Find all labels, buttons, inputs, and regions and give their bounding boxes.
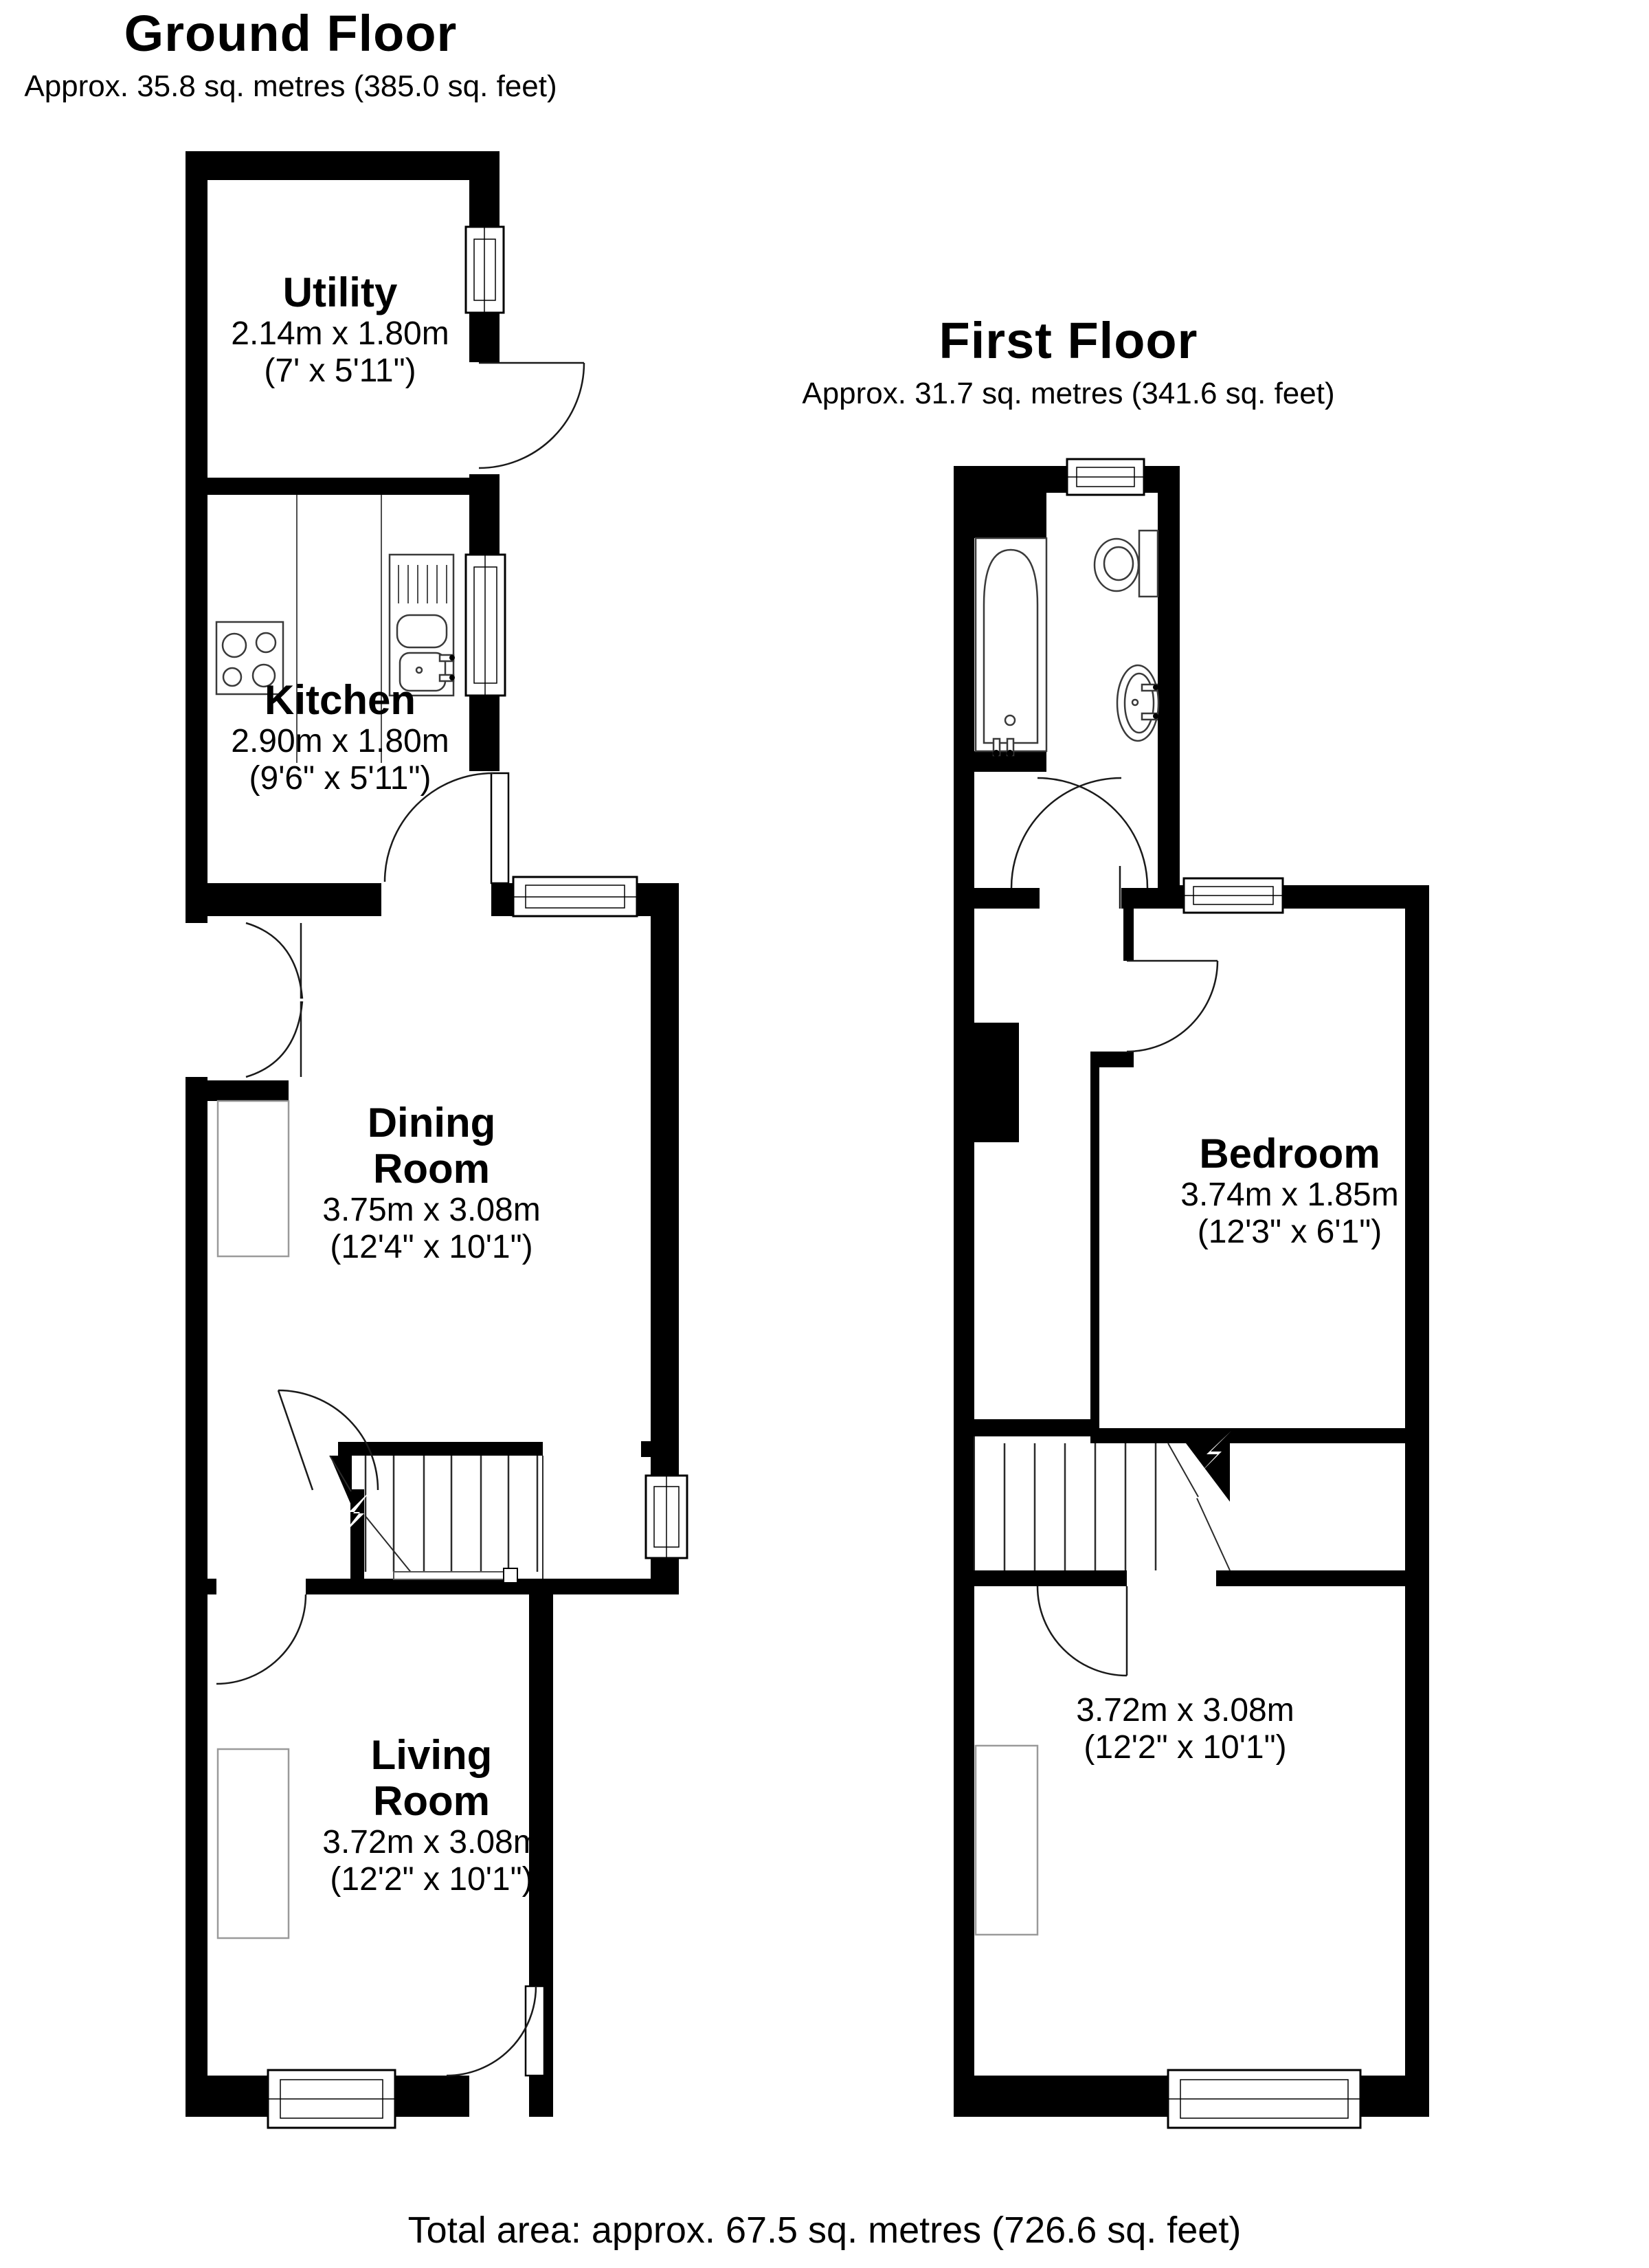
- bathroom-window-icon: [1067, 459, 1144, 495]
- dining-imperial: (12'4" x 10'1"): [260, 1229, 603, 1266]
- floorplan-sheet: Ground Floor Approx. 35.8 sq. metres (38…: [0, 0, 1649, 2268]
- bedroom-door-icon: [1127, 961, 1218, 1052]
- dining-name-line1: Dining: [260, 1100, 603, 1146]
- first-floor-title: First Floor: [778, 313, 1359, 370]
- first-floor-staircase: [974, 1431, 1231, 1570]
- basin-icon: [1117, 665, 1158, 741]
- living-door-icon: [216, 1594, 306, 1684]
- first-floor-header: First Floor Approx. 31.7 sq. metres (341…: [778, 313, 1359, 410]
- kitchen-name: Kitchen: [168, 677, 512, 723]
- dining-side-window-icon: [646, 1476, 687, 1558]
- ground-floor-subtitle: Approx. 35.8 sq. metres (385.0 sq. feet): [0, 69, 581, 103]
- total-area-label: Total area: approx. 67.5 sq. metres (726…: [275, 2210, 1374, 2251]
- ground-floor-title: Ground Floor: [0, 5, 581, 63]
- living-window-icon: [268, 2070, 395, 2128]
- bedroom-label: Bedroom 3.74m x 1.85m (12'3" x 6'1"): [1118, 1131, 1461, 1251]
- kitchen-metric: 2.90m x 1.80m: [168, 723, 512, 760]
- dining-room-label: Dining Room 3.75m x 3.08m (12'4" x 10'1"…: [260, 1100, 603, 1266]
- first-floor-subtitle: Approx. 31.7 sq. metres (341.6 sq. feet): [778, 377, 1359, 410]
- bedroom-window-icon: [1184, 878, 1283, 913]
- utility-metric: 2.14m x 1.80m: [203, 315, 478, 353]
- toilet-icon: [1095, 531, 1158, 597]
- dining-name-line2: Room: [260, 1146, 603, 1192]
- bath-icon: [976, 538, 1046, 757]
- front-bedroom-label: 3.72m x 3.08m (12'2" x 10'1"): [1013, 1692, 1357, 1766]
- utility-door-icon: [479, 363, 584, 468]
- living-imperial: (12'2" x 10'1"): [260, 1861, 603, 1898]
- bedroom-imperial: (12'3" x 6'1"): [1118, 1214, 1461, 1251]
- front-bedroom-metric: 3.72m x 3.08m: [1013, 1692, 1357, 1729]
- first-floor-windows: [1067, 459, 1360, 2128]
- kitchen-window-icon: [466, 555, 505, 696]
- bathroom-fixtures: [976, 531, 1158, 757]
- dining-top-window-icon: [513, 877, 637, 916]
- first-floor-furniture: [976, 1746, 1037, 1935]
- ground-floor-header: Ground Floor Approx. 35.8 sq. metres (38…: [0, 5, 581, 103]
- living-name-line2: Room: [260, 1778, 603, 1824]
- bedroom-name: Bedroom: [1118, 1131, 1461, 1177]
- living-metric: 3.72m x 3.08m: [260, 1824, 603, 1861]
- dining-metric: 3.75m x 3.08m: [260, 1192, 603, 1229]
- front-bedroom-window-icon: [1168, 2070, 1360, 2128]
- hall-door-icon: [278, 1390, 378, 1490]
- living-name-line1: Living: [260, 1732, 603, 1778]
- first-floor-plan: [954, 459, 1429, 2128]
- front-bedroom-imperial: (12'2" x 10'1"): [1013, 1729, 1357, 1766]
- dining-double-doors-icon: [246, 923, 302, 1077]
- kitchen-label: Kitchen 2.90m x 1.80m (9'6" x 5'11"): [168, 677, 512, 797]
- utility-label: Utility 2.14m x 1.80m (7' x 5'11"): [203, 269, 478, 390]
- front-bedroom-door-icon: [1037, 1586, 1127, 1676]
- utility-name: Utility: [203, 269, 478, 315]
- utility-imperial: (7' x 5'11"): [203, 353, 478, 390]
- front-bedroom-furniture: [976, 1746, 1037, 1935]
- front-door-icon: [447, 1986, 544, 2076]
- living-room-label: Living Room 3.72m x 3.08m (12'2" x 10'1"…: [260, 1732, 603, 1898]
- kitchen-imperial: (9'6" x 5'11"): [168, 760, 512, 797]
- bedroom-metric: 3.74m x 1.85m: [1118, 1177, 1461, 1214]
- chimney-breast: [974, 1023, 1019, 1142]
- sink-icon: [390, 555, 455, 696]
